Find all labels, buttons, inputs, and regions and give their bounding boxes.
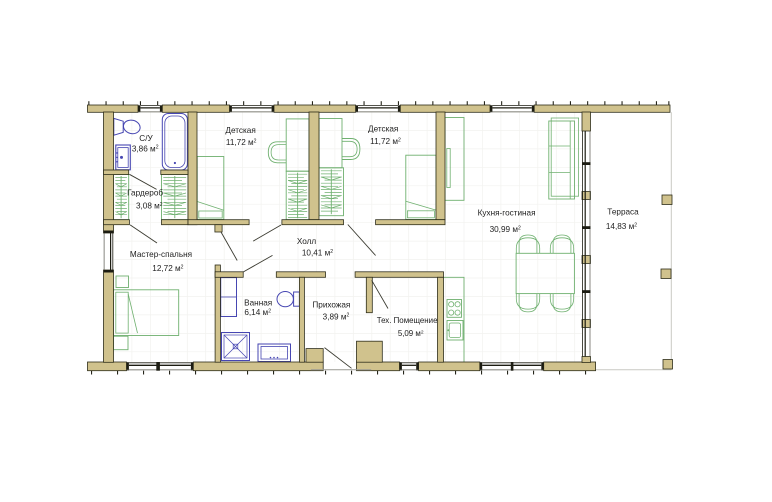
svg-text:11,72 м2: 11,72 м2 (226, 138, 257, 147)
svg-text:Терраса: Терраса (607, 208, 639, 217)
svg-text:30,99 м2: 30,99 м2 (490, 225, 521, 234)
svg-text:12,72 м2: 12,72 м2 (152, 264, 183, 273)
svg-text:Детская: Детская (368, 124, 398, 133)
svg-text:Мастер-спальня: Мастер-спальня (130, 250, 192, 259)
svg-text:С/У: С/У (139, 134, 153, 143)
svg-text:3,89 м2: 3,89 м2 (323, 312, 350, 321)
svg-text:3,86 м2: 3,86 м2 (132, 144, 159, 153)
svg-text:11,72 м2: 11,72 м2 (370, 137, 401, 146)
svg-text:14,83 м2: 14,83 м2 (606, 222, 637, 231)
svg-text:Гардероб: Гардероб (127, 189, 163, 198)
svg-text:Ванная: Ванная (244, 299, 272, 308)
svg-text:3,08 м2: 3,08 м2 (136, 202, 163, 211)
svg-text:Прихожая: Прихожая (312, 300, 350, 309)
svg-text:5,09 м2: 5,09 м2 (398, 329, 424, 338)
svg-text:10,41 м2: 10,41 м2 (302, 249, 333, 258)
svg-text:6,14 м2: 6,14 м2 (244, 308, 271, 317)
svg-text:Детская: Детская (225, 126, 255, 135)
svg-text:Холл: Холл (297, 237, 317, 246)
svg-text:Тех. Помещение: Тех. Помещение (377, 316, 438, 325)
svg-text:Кухня-гостиная: Кухня-гостиная (478, 208, 536, 217)
